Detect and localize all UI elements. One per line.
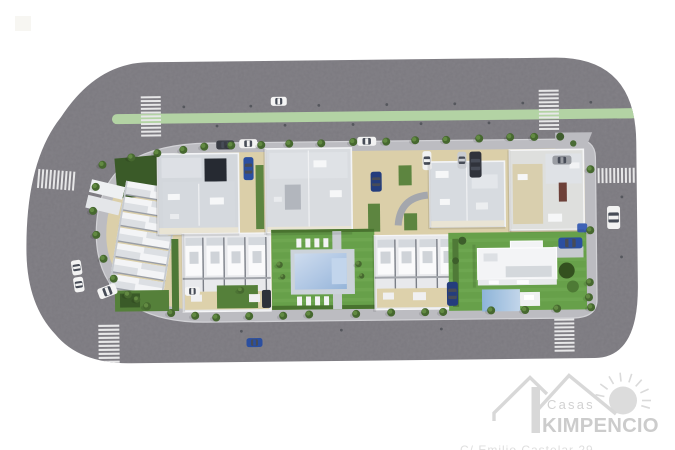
svg-text:Casas: Casas — [547, 397, 595, 412]
svg-text:KIMPENCIO: KIMPENCIO — [542, 415, 659, 437]
svg-text:C/ Emilio Castelar 29: C/ Emilio Castelar 29 — [460, 443, 594, 450]
